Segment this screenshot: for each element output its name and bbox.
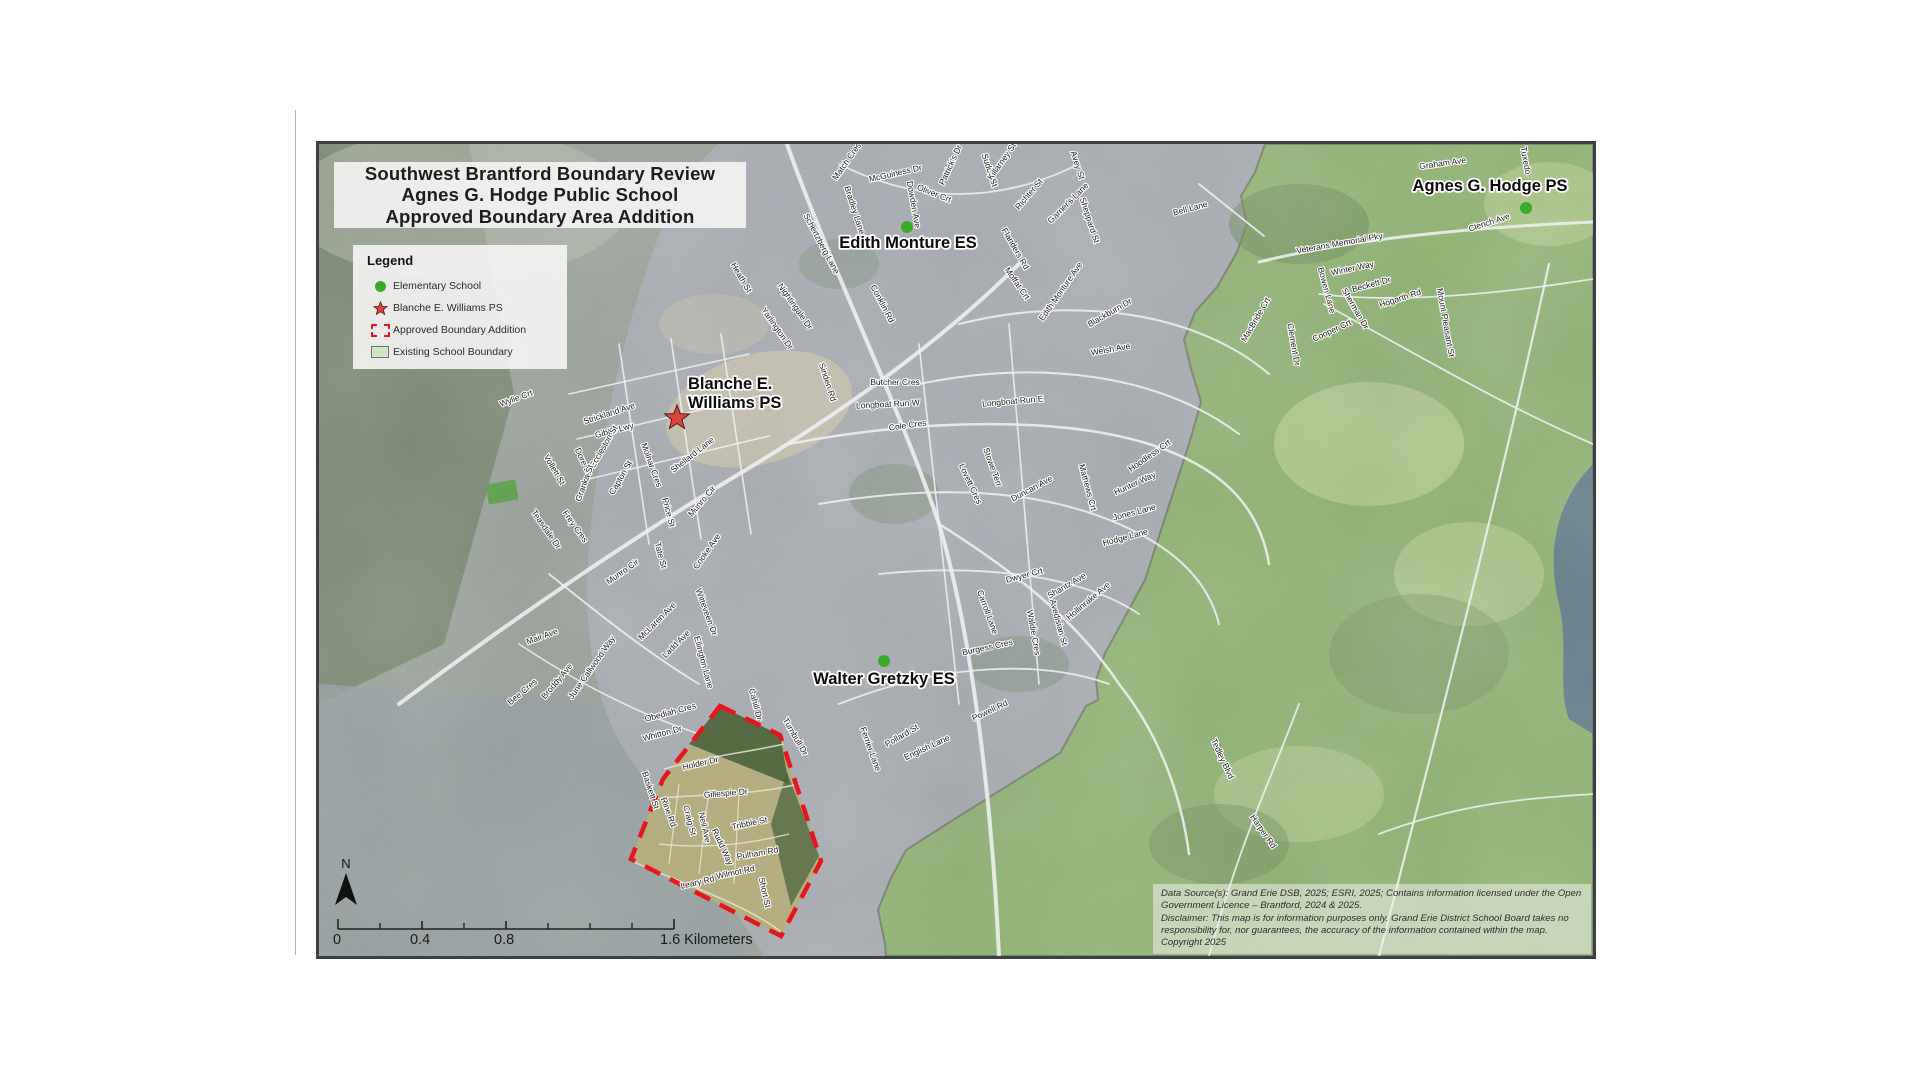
map-title-line1: Southwest Brantford Boundary Review: [334, 163, 746, 185]
legend-item-elementary-school: Elementary School: [367, 275, 555, 297]
school-label: Walter Gretzky ES: [813, 670, 955, 688]
scale-bar-ticks: [336, 918, 681, 932]
page: { "title": { "lines": [ "Southwest Brant…: [0, 0, 1920, 1080]
map-title-box: Southwest Brantford Boundary Review Agne…: [334, 162, 746, 228]
legend-item-label: Existing School Boundary: [393, 346, 513, 358]
legend-item-existing-boundary: Existing School Boundary: [367, 341, 555, 363]
disclaimer-box: Data Source(s): Grand Erie DSB, 2025; ES…: [1153, 884, 1591, 954]
scale-label-04: 0.4: [410, 932, 430, 948]
elementary-school-dot: [878, 655, 890, 667]
school-label: Agnes G. Hodge PS: [1413, 177, 1568, 195]
map-title-line3: Approved Boundary Area Addition: [334, 206, 746, 228]
map-title-line2: Agnes G. Hodge Public School: [334, 184, 746, 206]
north-arrow: N: [331, 856, 361, 912]
page-divider-line: [295, 110, 296, 955]
red-dashed-outline-icon: [367, 324, 393, 337]
legend-item-label: Approved Boundary Addition: [393, 324, 526, 336]
north-arrow-icon: [333, 871, 359, 907]
scale-label-16km: 1.6 Kilometers: [660, 932, 753, 948]
legend-item-blanche-williams: Blanche E. Williams PS: [367, 297, 555, 319]
school-label-line1: Blanche E.: [688, 375, 772, 393]
red-star-icon: [367, 301, 393, 316]
disclaimer-text: Disclaimer: This map is for information …: [1161, 913, 1583, 938]
north-label: N: [331, 856, 361, 871]
legend-item-label: Elementary School: [393, 280, 481, 292]
disclaimer-copyright: Copyright 2025: [1161, 937, 1583, 949]
elementary-school-dot-icon: [367, 281, 393, 292]
scale-label-08: 0.8: [494, 932, 514, 948]
map-canvas: Wylie CrtStrickland AveGibbs LwyEcclesto…: [316, 141, 1596, 959]
disclaimer-data-source: Data Source(s): Grand Erie DSB, 2025; ES…: [1161, 888, 1583, 913]
elementary-school-dot: [1520, 202, 1532, 214]
school-label-line2: Williams PS: [688, 394, 781, 412]
legend-item-label: Blanche E. Williams PS: [393, 302, 503, 314]
green-fill-swatch-icon: [367, 346, 393, 358]
legend: Legend Elementary School Blanche E. Will…: [353, 245, 567, 369]
legend-heading: Legend: [367, 253, 555, 268]
street-label: Butcher Cres: [870, 377, 920, 387]
scale-bar: 0 0.4 0.8 1.6 Kilometers: [336, 918, 796, 954]
elementary-school-dot: [901, 221, 913, 233]
school-label: Edith Monture ES: [839, 234, 977, 252]
scale-label-0: 0: [333, 932, 341, 948]
legend-item-approved-boundary: Approved Boundary Addition: [367, 319, 555, 341]
